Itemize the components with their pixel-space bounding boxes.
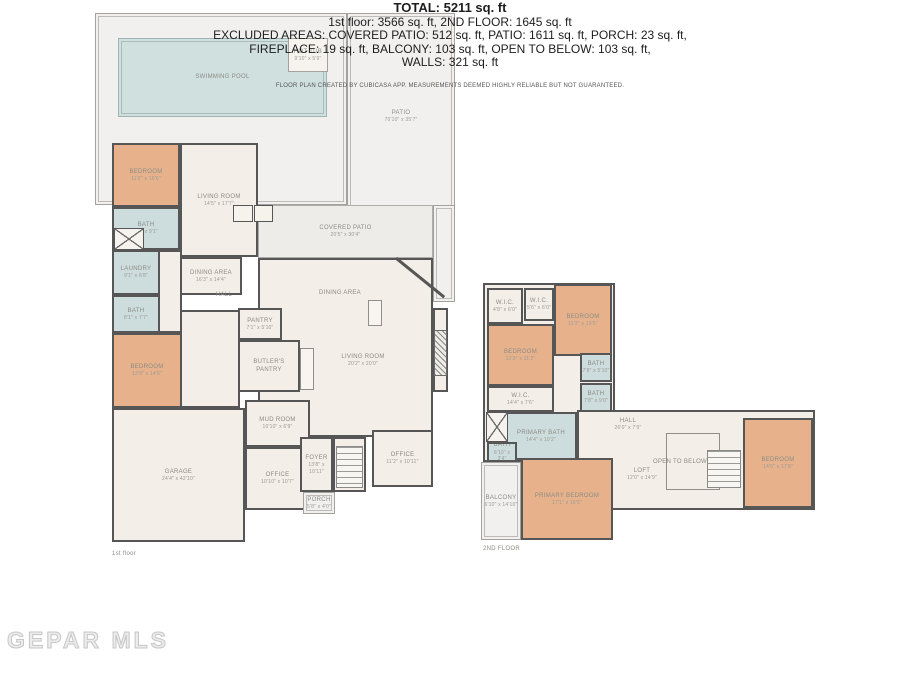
room-label: BEDROOM — [761, 456, 794, 464]
room-bath-5: BATH6'10" x 3'4" — [487, 442, 517, 462]
closet-box — [233, 205, 253, 222]
total-area-text: TOTAL: 5211 sq. ft — [0, 0, 900, 15]
second-floor-caption: 2ND FLOOR — [483, 546, 520, 552]
room-label: BATH — [494, 442, 511, 450]
room-label: W.I.C. — [496, 299, 514, 307]
first-floor-caption: 1st floor — [112, 551, 136, 557]
mls-watermark: GEPAR MLS — [7, 627, 169, 654]
room-dimensions: 14'4" x 7'6" — [507, 400, 534, 407]
room-dimensions: 17'1" x 16'5" — [552, 500, 582, 507]
room-hall-2: HALL26'0" x 7'9" — [598, 414, 658, 434]
room-balcony: BALCONY6'10" x 14'10" — [481, 462, 521, 540]
shower-icon — [114, 228, 144, 250]
room-dimensions: 7'8" x 5'10" — [582, 368, 609, 375]
room-label: W.I.C. — [530, 297, 548, 305]
room-bath-3: BATH7'8" x 5'10" — [580, 353, 612, 382]
room-dimensions: 26'0" x 7'9" — [614, 425, 641, 432]
room-wic-1: W.I.C.4'8" x 6'0" — [487, 288, 523, 324]
room-primary-bedroom: PRIMARY BEDROOM17'1" x 16'5" — [521, 458, 613, 540]
room-bedroom-3: BEDROOM11'2" x 13'5" — [554, 284, 612, 356]
room-label: PRIMARY BEDROOM — [535, 492, 599, 500]
refrigerator — [368, 300, 382, 326]
room-dimensions: 14'6" x 17'8" — [763, 464, 793, 471]
room-wic-2: W.I.C.5'6" x 6'0" — [524, 288, 554, 321]
excluded-areas-text: EXCLUDED AREAS: COVERED PATIO: 512 sq. f… — [0, 29, 900, 42]
room-wic-3: W.I.C.14'4" x 7'6" — [487, 386, 554, 412]
room-dimensions: 4'8" x 6'0" — [493, 307, 517, 314]
room-label: HALL — [620, 417, 636, 425]
kitchen-island — [300, 348, 314, 390]
room-dimensions: 12'9" x 11'2" — [506, 356, 536, 363]
staircase-first-floor — [336, 446, 363, 488]
room-label: BEDROOM — [566, 313, 599, 321]
second-floor-plan: W.I.C.4'8" x 6'0"W.I.C.5'6" x 6'0"BEDROO… — [0, 0, 900, 675]
floorplan-image: PATIO70'10" x 35'7"COVERED PATIO20'5" x … — [0, 0, 900, 675]
area-summary: TOTAL: 5211 sq. ft 1st floor: 3566 sq. f… — [0, 0, 900, 89]
room-dimensions: 5'6" x 6'0" — [527, 305, 551, 312]
room-label: BATH — [588, 390, 605, 398]
walls-area-text: WALLS: 321 sq. ft — [0, 56, 900, 69]
room-dimensions: 11'2" x 13'5" — [568, 321, 598, 328]
fireplace — [434, 330, 447, 376]
room-dimensions: 12'0" x 14'9" — [627, 475, 657, 482]
staircase-second-floor — [707, 450, 741, 488]
room-label: BALCONY — [486, 494, 517, 502]
floor-areas-text: 1st floor: 3566 sq. ft, 2ND FLOOR: 1645 … — [0, 16, 900, 29]
room-dimensions: 14'4" x 10'2" — [526, 437, 556, 444]
shower-icon — [486, 412, 508, 442]
room-label: BATH — [588, 360, 605, 368]
room-label: PRIMARY BATH — [517, 429, 565, 437]
room-dimensions: 7'8" x 9'0" — [584, 398, 608, 405]
closet-box — [254, 205, 273, 222]
disclaimer-text: FLOOR PLAN CREATED BY CUBICASA APP. MEAS… — [0, 83, 900, 89]
room-bedroom-5: BEDROOM14'6" x 17'8" — [743, 418, 813, 508]
room-dimensions: 6'10" x 3'4" — [489, 450, 515, 462]
room-label: BEDROOM — [504, 348, 537, 356]
room-bath-4: BATH7'8" x 9'0" — [580, 383, 612, 412]
room-bedroom-4: BEDROOM12'9" x 11'2" — [487, 324, 554, 386]
excluded-areas-text-2: FIREPLACE: 19 sq. ft, BALCONY: 103 sq. f… — [0, 43, 900, 56]
room-dimensions: 6'10" x 14'10" — [484, 502, 517, 509]
room-label: W.I.C. — [511, 392, 529, 400]
